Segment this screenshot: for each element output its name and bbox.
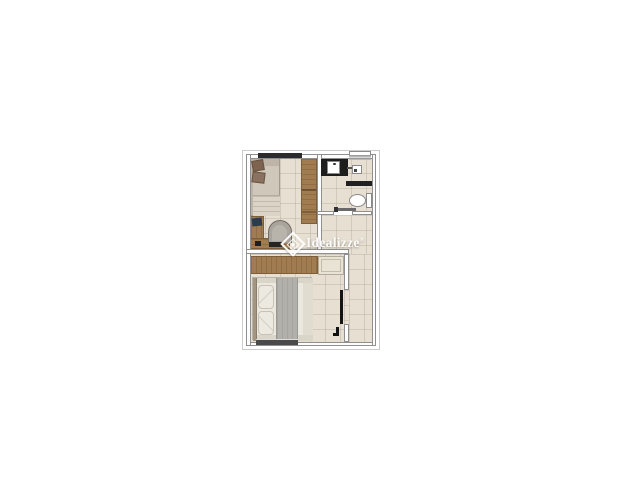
bed-runner [276, 278, 298, 341]
bedroom-door-opening [344, 290, 349, 324]
desk-accessory [255, 241, 261, 246]
bedroom-closet [250, 256, 318, 274]
daybed-pillow [251, 159, 265, 172]
shower-partition [346, 181, 372, 187]
shower-drain [352, 165, 362, 174]
watermark-brand: Idealizze [306, 235, 360, 250]
shower-pipe [347, 167, 352, 169]
corridor-floor-lower [349, 254, 372, 342]
laptop [252, 217, 263, 226]
toilet-tank [366, 193, 372, 208]
bedroom-window [256, 339, 298, 345]
watermark-diamond-logo-icon [284, 235, 302, 253]
wardrobe-shelf-line [302, 189, 316, 191]
faucet-icon [333, 163, 336, 166]
wall-bedroom-upper [344, 254, 349, 290]
bed-pillow [258, 311, 274, 335]
toilet-bowl [349, 194, 366, 207]
daybed [250, 158, 280, 216]
entry-cabinet-line [321, 259, 341, 272]
headboard [253, 278, 257, 341]
wardrobe-shelf-line [302, 211, 316, 213]
daybed-pillow [251, 171, 265, 184]
bed-pillow [258, 285, 274, 309]
floor-plan: Idealizze® [242, 150, 380, 350]
wall-bathroom-right [352, 211, 372, 215]
double-bed [252, 277, 312, 340]
door-stop-icon [333, 327, 341, 337]
shower-valve-icon [354, 169, 357, 172]
wall-bedroom-lower [344, 324, 349, 342]
registered-mark: ® [360, 238, 365, 244]
shower-window [349, 155, 371, 160]
daybed-blanket [253, 195, 280, 216]
living-window [258, 153, 302, 158]
bedroom-door-leaf [340, 290, 343, 324]
entry-cabinet [318, 256, 344, 275]
bed-foot-fold [303, 278, 313, 341]
wardrobe [301, 158, 317, 224]
wall-right [372, 154, 377, 346]
watermark-text: Idealizze® [306, 236, 364, 250]
wall-bathroom-left [317, 211, 334, 215]
door-handle-icon [334, 207, 338, 212]
sink [327, 161, 340, 174]
